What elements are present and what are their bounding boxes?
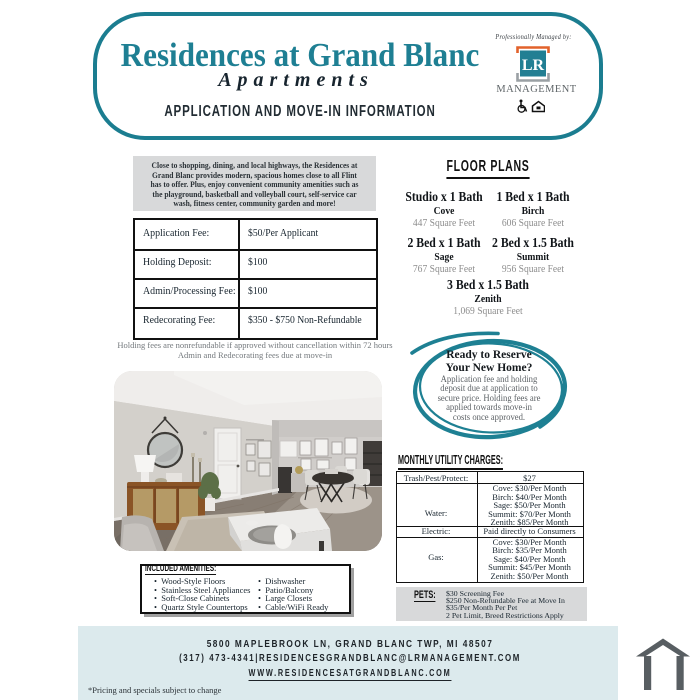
- svg-text:LR: LR: [522, 57, 545, 74]
